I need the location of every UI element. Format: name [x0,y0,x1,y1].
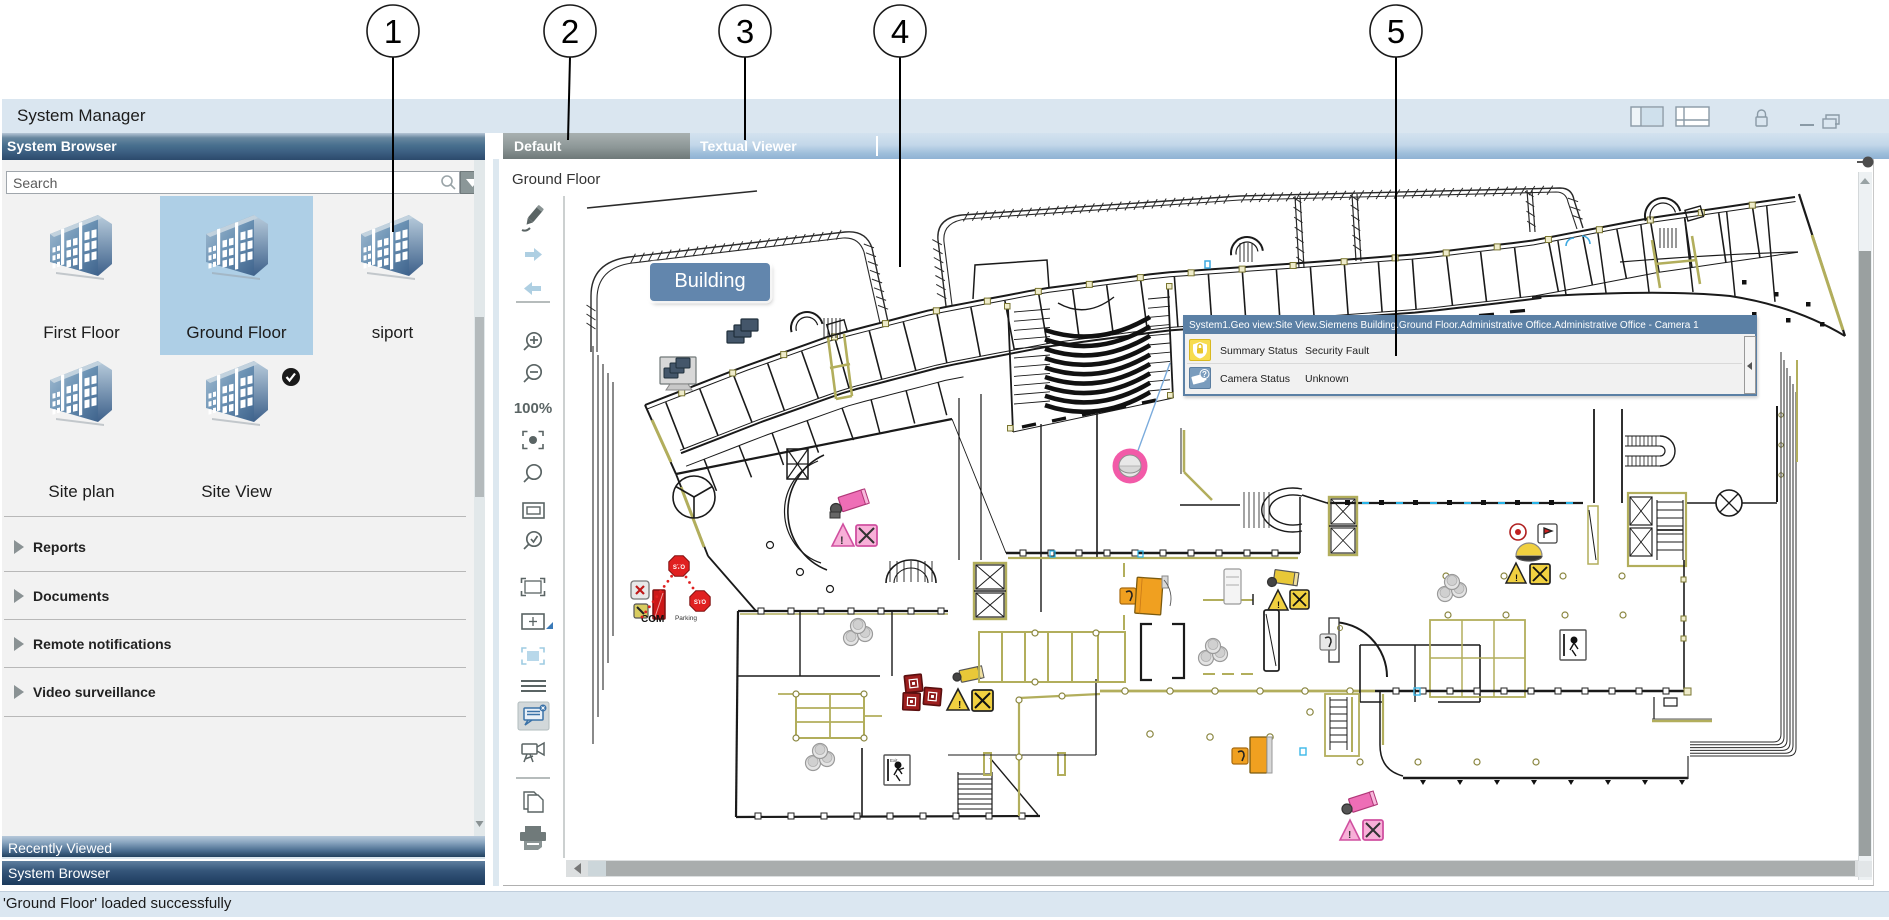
svg-text:2: 2 [561,13,579,50]
svg-text:1: 1 [384,13,402,50]
svg-text:3: 3 [736,13,754,50]
svg-text:5: 5 [1387,13,1405,50]
svg-text:4: 4 [891,13,909,50]
